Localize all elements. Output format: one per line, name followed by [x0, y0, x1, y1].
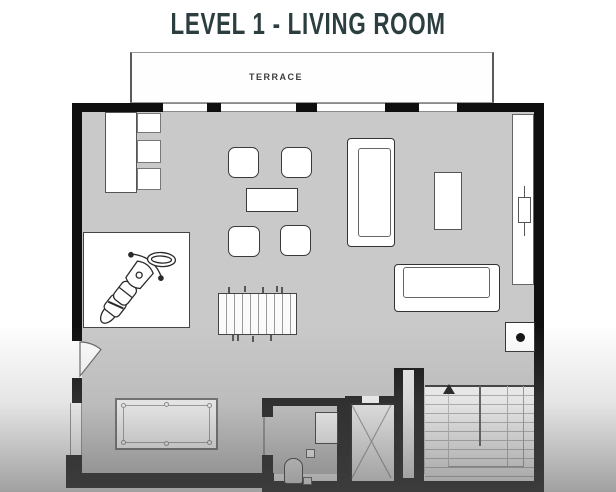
floor-drain: [303, 477, 312, 485]
bathroom-wall: [262, 455, 273, 492]
floor-drain: [306, 449, 315, 458]
desk-stool: [137, 168, 161, 190]
terrace-door-opening: [221, 103, 296, 112]
terrace-door-opening: [317, 103, 385, 112]
lamp-table: [505, 322, 535, 352]
wall-segment: [296, 103, 317, 112]
desk: [105, 112, 137, 193]
lamp-icon: [516, 333, 525, 342]
wardrobe-handle: [518, 197, 531, 223]
toilet: [284, 458, 303, 484]
bathroom-wall: [262, 398, 273, 417]
wall-segment: [534, 103, 544, 483]
wall-segment: [207, 103, 221, 112]
bathroom-door: [263, 417, 265, 455]
armchair: [281, 147, 312, 178]
foosball-rod-handle: [262, 287, 264, 293]
wall-segment: [72, 103, 82, 341]
armchair: [228, 147, 259, 178]
small-sofa-seat: [403, 267, 490, 298]
foosball-rod-handle: [232, 335, 234, 341]
window: [70, 403, 82, 455]
foosball-rod-handle: [270, 335, 272, 341]
coffee-table: [246, 188, 298, 212]
desk-stool: [137, 140, 161, 163]
window: [419, 103, 457, 112]
wall-segment: [457, 103, 544, 112]
armchair: [280, 225, 311, 256]
motorcycle-icon: [83, 232, 190, 328]
armchair: [228, 226, 260, 257]
floorplan-screenshot: LEVEL 1 - LIVING ROOM TERRACE: [0, 0, 616, 492]
foosball-table: [218, 293, 297, 335]
foosball-rod-handle: [252, 336, 254, 342]
foosball-rod-handle: [281, 287, 283, 293]
window: [163, 103, 207, 112]
wall-segment: [72, 103, 163, 112]
bathroom-wall: [337, 398, 350, 492]
wall-segment: [66, 473, 274, 488]
foosball-rod-handle: [237, 335, 239, 341]
elevator-door: [362, 396, 379, 403]
foosball-rod-handle: [228, 287, 230, 293]
console-table: [434, 172, 462, 230]
duct-slot: [403, 370, 414, 478]
pool-table: [115, 398, 218, 450]
wall-segment: [385, 103, 419, 112]
sink: [315, 412, 338, 444]
pool-table-felt: [123, 405, 210, 443]
foosball-rod-handle: [276, 286, 278, 292]
foosball-rod-handle: [244, 286, 246, 292]
large-sofa-seat: [358, 148, 391, 237]
entry-door-swing-icon: [72, 336, 118, 382]
desk-stool: [137, 113, 161, 133]
